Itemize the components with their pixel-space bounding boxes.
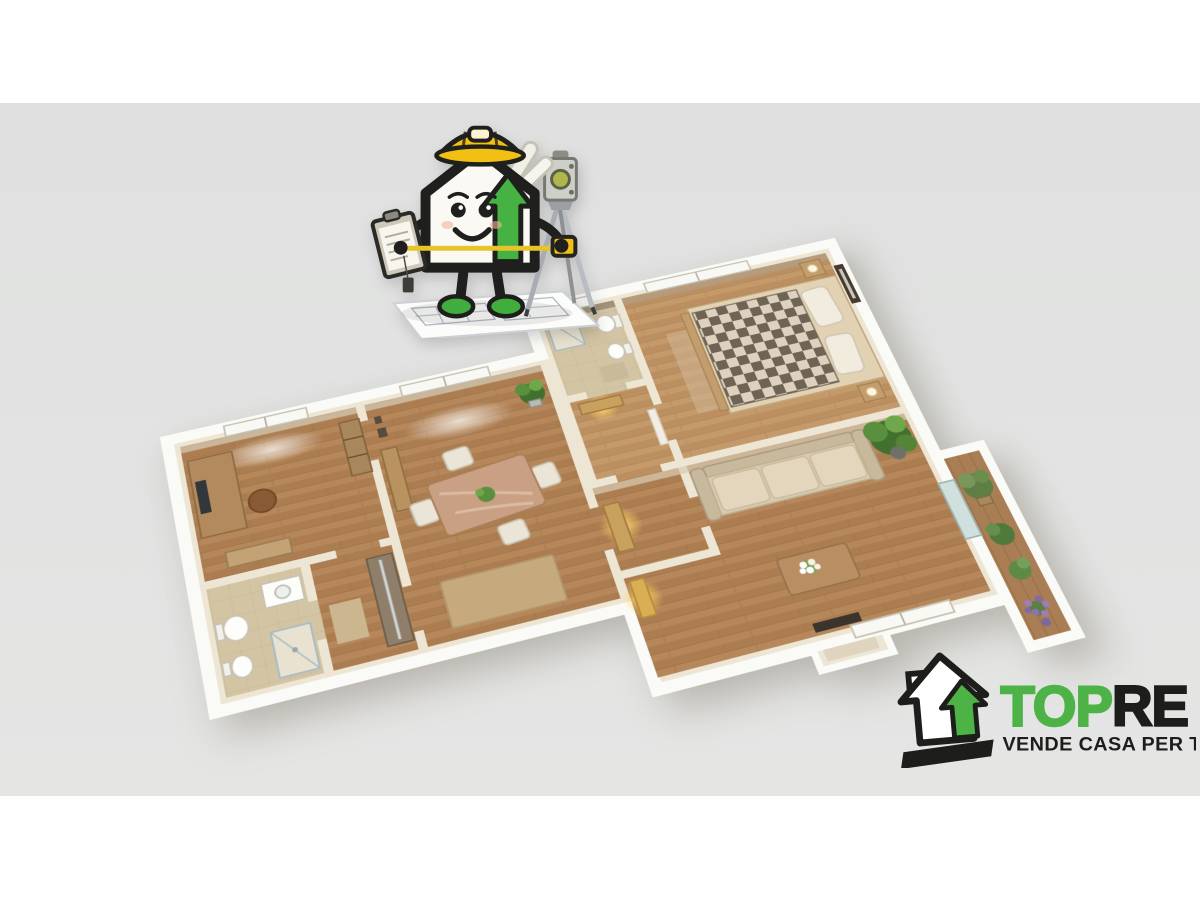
hard-hat — [436, 128, 523, 165]
brand-re: RE — [1112, 674, 1188, 737]
right-hand — [555, 239, 569, 253]
shower — [271, 623, 320, 678]
brand-tagline: VENDE CASA PER TE! — [1002, 733, 1196, 755]
brand-wordmark: TOPRE — [1001, 674, 1188, 737]
surveyor-house-mascot — [366, 98, 624, 338]
station-lens — [552, 170, 570, 188]
logo-house-icon — [896, 652, 995, 768]
headlamp — [469, 128, 491, 141]
left-hand — [394, 241, 408, 255]
brand-top: TOP — [1001, 674, 1112, 737]
logo-svg: TOPRE VENDE CASA PER TE! — [896, 642, 1196, 768]
plumb-bob — [403, 278, 414, 293]
green-shoe — [489, 296, 523, 316]
topre-logo: TOPRE VENDE CASA PER TE! — [896, 642, 1196, 768]
green-shoe — [439, 296, 473, 316]
mascot-svg — [366, 98, 624, 338]
